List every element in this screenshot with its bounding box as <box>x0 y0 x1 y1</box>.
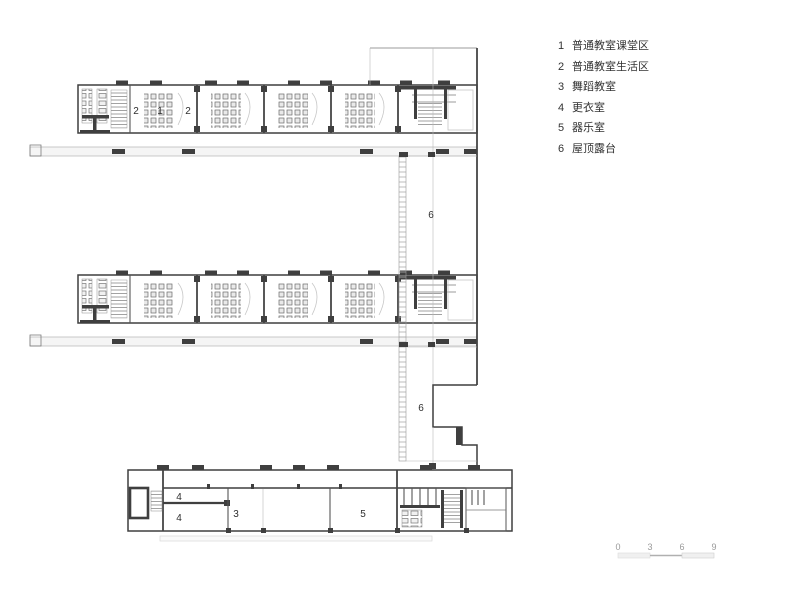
scale-bar: 0 3 6 9 <box>615 542 716 558</box>
legend-item-6: 6 屋顶露台 <box>558 143 649 155</box>
scale-tick-0: 0 <box>615 542 620 552</box>
legend-num-6: 6 <box>558 143 572 155</box>
room-label-living-left: 2 <box>133 106 139 117</box>
legend: 1 普通教室课堂区 2 普通教室生活区 3 舞蹈教室 4 更衣室 5 器乐室 6… <box>558 40 649 163</box>
legend-item-1: 1 普通教室课堂区 <box>558 40 649 52</box>
room-label-living-right: 2 <box>185 106 191 117</box>
room-label-changing-upper: 4 <box>176 492 182 503</box>
legend-item-5: 5 器乐室 <box>558 122 649 134</box>
legend-label-5: 器乐室 <box>572 122 605 134</box>
middle-balcony-strip <box>30 337 477 346</box>
room-label-dance: 3 <box>233 509 239 520</box>
legend-num-4: 4 <box>558 102 572 114</box>
room-label-changing-lower: 4 <box>176 513 182 524</box>
scale-tick-3: 3 <box>647 542 652 552</box>
middle-classroom-wing <box>30 271 477 347</box>
legend-label-2: 普通教室生活区 <box>572 61 649 73</box>
floor-plan-drawing: 2 1 2 6 6 <box>0 0 800 603</box>
upper-balcony-strip <box>30 147 477 156</box>
upper-classroom-wing: 2 1 2 <box>30 81 477 157</box>
room-label-classroom: 1 <box>157 106 163 117</box>
legend-num-5: 5 <box>558 122 572 134</box>
legend-num-2: 2 <box>558 61 572 73</box>
legend-label-6: 屋顶露台 <box>572 143 616 155</box>
lower-terrace-strip <box>160 536 432 541</box>
legend-label-1: 普通教室课堂区 <box>572 40 649 52</box>
legend-label-3: 舞蹈教室 <box>572 81 616 93</box>
stair-treads <box>151 491 162 511</box>
floor-plan-page: 2 1 2 6 6 <box>0 0 800 603</box>
terrace-parapet-strip <box>399 156 406 461</box>
legend-item-3: 3 舞蹈教室 <box>558 81 649 93</box>
room-label-terrace-upper: 6 <box>428 210 434 221</box>
scale-tick-9: 9 <box>711 542 716 552</box>
legend-item-2: 2 普通教室生活区 <box>558 61 649 73</box>
legend-num-1: 1 <box>558 40 572 52</box>
legend-item-4: 4 更衣室 <box>558 102 649 114</box>
room-label-music: 5 <box>360 509 366 520</box>
legend-num-3: 3 <box>558 81 572 93</box>
room-label-terrace-lower: 6 <box>418 403 424 414</box>
lower-wing: 4 4 3 5 <box>128 465 512 541</box>
scale-tick-6: 6 <box>679 542 684 552</box>
legend-label-4: 更衣室 <box>572 102 605 114</box>
